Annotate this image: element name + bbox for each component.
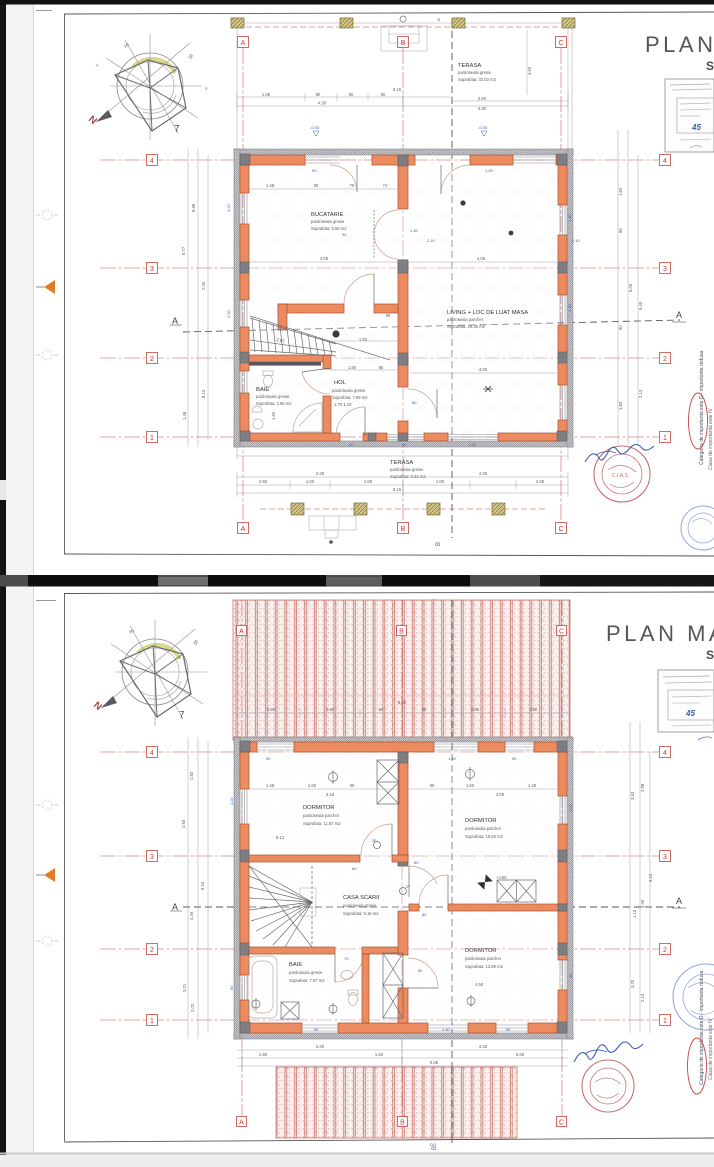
svg-text:80: 80 — [418, 968, 423, 973]
svg-text:1.20: 1.20 — [226, 309, 231, 318]
svg-text:1: 1 — [663, 435, 667, 442]
svg-text:1.82: 1.82 — [271, 411, 276, 420]
svg-text:80: 80 — [422, 912, 427, 917]
svg-text:4.30: 4.30 — [479, 1044, 488, 1049]
svg-text:90: 90 — [379, 707, 384, 712]
svg-text:8.05: 8.05 — [628, 283, 633, 292]
svg-text:Suprafata: 9.16 m2: Suprafata: 9.16 m2 — [343, 911, 379, 916]
svg-text:60: 60 — [349, 442, 354, 447]
svg-text:B: B — [401, 40, 406, 47]
svg-text:+4.50: +4.50 — [496, 875, 507, 880]
svg-text:2.45: 2.45 — [201, 281, 206, 290]
svg-text:1.40: 1.40 — [410, 228, 419, 233]
svg-text:LIVING + LOC DE LUAT MASA: LIVING + LOC DE LUAT MASA — [447, 310, 528, 316]
svg-text:1.80: 1.80 — [348, 365, 357, 370]
svg-text:C.I.A.S.: C.I.A.S. — [612, 473, 629, 479]
svg-text:Clasa de importanta este IV: Clasa de importanta este IV — [708, 408, 714, 470]
svg-text:pardoseala gresie: pardoseala gresie — [256, 394, 290, 399]
svg-text:TERASA: TERASA — [458, 63, 481, 69]
svg-text:2.13: 2.13 — [640, 993, 645, 1002]
svg-text:45: 45 — [685, 709, 695, 718]
svg-text:B: B — [436, 542, 442, 546]
svg-text:9.15: 9.15 — [393, 487, 402, 492]
svg-text:1: 1 — [663, 1018, 667, 1025]
svg-text:C: C — [559, 1120, 564, 1127]
svg-text:HOL: HOL — [334, 380, 347, 386]
svg-text:-0.05: -0.05 — [478, 125, 488, 130]
svg-text:Suprafata: 9.22 m2: Suprafata: 9.22 m2 — [390, 474, 426, 479]
svg-text:2.82: 2.82 — [189, 771, 194, 780]
svg-text:70: 70 — [350, 183, 355, 188]
svg-text:9.85: 9.85 — [430, 1060, 439, 1065]
svg-text:2.98: 2.98 — [640, 783, 645, 792]
svg-text:90: 90 — [386, 313, 391, 318]
svg-text:90: 90 — [618, 228, 623, 233]
svg-text:3: 3 — [663, 854, 667, 861]
svg-text:4.05: 4.05 — [477, 256, 486, 261]
svg-text:BUCATARIE: BUCATARIE — [311, 212, 343, 218]
svg-text:80: 80 — [402, 442, 407, 447]
svg-text:1.48: 1.48 — [266, 183, 275, 188]
svg-text:pardoseala gresie: pardoseala gresie — [311, 219, 345, 224]
svg-text:1.40: 1.40 — [448, 756, 457, 761]
svg-text:Suprafata: 13.99 m2: Suprafata: 13.99 m2 — [465, 964, 504, 969]
svg-text:3: 3 — [150, 854, 154, 861]
svg-text:Suprafata: 32.03 m2: Suprafata: 32.03 m2 — [458, 77, 497, 82]
svg-text:pardoseala parchet: pardoseala parchet — [447, 317, 484, 322]
svg-text:4.60: 4.60 — [527, 66, 532, 75]
svg-text:-0.05: -0.05 — [310, 125, 320, 130]
svg-text:4.30: 4.30 — [479, 471, 488, 476]
svg-text:2: 2 — [663, 356, 667, 363]
svg-text:90: 90 — [316, 92, 321, 97]
svg-text:1.90: 1.90 — [326, 707, 335, 712]
svg-text:1.20: 1.20 — [568, 803, 573, 812]
svg-text:pardoseala gresie: pardoseala gresie — [289, 970, 323, 975]
svg-text:4.30: 4.30 — [316, 1044, 325, 1049]
svg-text:80: 80 — [352, 866, 357, 871]
svg-text:1.60: 1.60 — [466, 783, 475, 788]
svg-text:4.50: 4.50 — [475, 982, 484, 987]
svg-text:A: A — [172, 316, 178, 326]
svg-text:1.83: 1.83 — [618, 401, 623, 410]
svg-text:1.20: 1.20 — [226, 203, 231, 212]
svg-text:4.18: 4.18 — [326, 792, 335, 797]
svg-text:1.20: 1.20 — [468, 442, 477, 447]
svg-text:1.40: 1.40 — [442, 1027, 451, 1032]
svg-text:4.05: 4.05 — [496, 792, 505, 797]
svg-text:A: A — [241, 40, 246, 47]
svg-text:4: 4 — [663, 158, 667, 165]
svg-text:pardoseala parchet: pardoseala parchet — [465, 956, 502, 961]
svg-text:1.90: 1.90 — [259, 1052, 268, 1057]
svg-text:90: 90 — [349, 92, 354, 97]
svg-text:Suprafata: 7.87 m2: Suprafata: 7.87 m2 — [289, 978, 325, 983]
svg-text:1.83: 1.83 — [618, 187, 623, 196]
svg-text:9.15: 9.15 — [393, 87, 402, 92]
svg-text:45: 45 — [691, 123, 701, 132]
svg-text:90: 90 — [314, 1027, 319, 1032]
svg-text:BAIE: BAIE — [289, 962, 302, 968]
svg-text:4.60: 4.60 — [478, 96, 487, 101]
svg-text:pardoseala gresie: pardoseala gresie — [343, 903, 377, 908]
svg-text:8.13: 8.13 — [201, 389, 206, 398]
svg-text:9.45: 9.45 — [638, 301, 643, 310]
svg-text:4.46: 4.46 — [189, 911, 194, 920]
svg-text:1.48: 1.48 — [528, 783, 537, 788]
svg-text:A: A — [239, 629, 244, 636]
svg-text:1.90: 1.90 — [267, 707, 276, 712]
svg-text:CASA SCARII: CASA SCARII — [343, 895, 380, 901]
svg-text:1.20: 1.20 — [485, 168, 494, 173]
svg-text:3: 3 — [150, 266, 154, 273]
svg-text:1.60: 1.60 — [359, 337, 368, 342]
svg-text:Suprafata: 10.60 m2: Suprafata: 10.60 m2 — [465, 834, 504, 839]
svg-text:Clasa de importanta este IV: Clasa de importanta este IV — [708, 1018, 714, 1080]
svg-text:1.48: 1.48 — [266, 783, 275, 788]
svg-text:3.93: 3.93 — [630, 791, 635, 800]
svg-text:A: A — [239, 1120, 244, 1127]
svg-text:DO: DO — [430, 1142, 436, 1147]
svg-text:1.60: 1.60 — [308, 783, 317, 788]
svg-text:2: 2 — [150, 356, 154, 363]
svg-text:DORMITOR: DORMITOR — [303, 805, 334, 811]
svg-text:C: C — [559, 629, 564, 636]
svg-text:3.20: 3.20 — [630, 979, 635, 988]
svg-text:A: A — [241, 526, 246, 533]
svg-text:90: 90 — [430, 783, 435, 788]
svg-text:9.12: 9.12 — [276, 835, 285, 840]
svg-text:4: 4 — [663, 750, 667, 757]
svg-text:90: 90 — [381, 92, 386, 97]
svg-text:1.00: 1.00 — [306, 479, 315, 484]
svg-text:74: 74 — [383, 183, 388, 188]
svg-text:3.21: 3.21 — [182, 983, 187, 992]
svg-text:70: 70 — [344, 956, 349, 961]
svg-text:1: 1 — [150, 435, 154, 442]
svg-text:2.10: 2.10 — [572, 238, 581, 243]
svg-text:A: A — [172, 902, 178, 912]
svg-text:90: 90 — [512, 756, 517, 761]
svg-text:4.30: 4.30 — [478, 106, 487, 111]
svg-text:B: B — [399, 629, 404, 636]
svg-text:B: B — [401, 526, 406, 533]
svg-text:60: 60 — [568, 973, 573, 978]
svg-text:7: 7 — [174, 124, 180, 135]
svg-text:2: 2 — [663, 947, 667, 954]
svg-text:1.60: 1.60 — [375, 1052, 384, 1057]
svg-text:S: S — [706, 648, 714, 662]
svg-text:1.48: 1.48 — [182, 411, 187, 420]
svg-text:1: 1 — [150, 1018, 154, 1025]
svg-text:5.85: 5.85 — [516, 1052, 525, 1057]
svg-text:pardoseala gresie: pardoseala gresie — [332, 388, 366, 393]
svg-text:TERASA: TERASA — [390, 460, 413, 466]
svg-text:C: C — [558, 40, 563, 47]
svg-text:C: C — [558, 526, 563, 533]
svg-text:2.02: 2.02 — [190, 1003, 195, 1012]
svg-text:PLAN MAN: PLAN MAN — [606, 621, 714, 646]
svg-text:2.10: 2.10 — [427, 238, 436, 243]
svg-text:Suprafata: 3.68 m2: Suprafata: 3.68 m2 — [256, 401, 292, 406]
svg-text:1.85: 1.85 — [364, 479, 373, 484]
svg-text:PLAN P: PLAN P — [645, 32, 714, 57]
svg-text:B: B — [400, 1120, 405, 1127]
svg-text:pardoseala parchet: pardoseala parchet — [303, 813, 340, 818]
svg-text:4.05: 4.05 — [320, 256, 329, 261]
svg-text:1.20: 1.20 — [229, 796, 234, 805]
svg-text:4: 4 — [150, 750, 154, 757]
svg-text:90: 90 — [350, 783, 355, 788]
svg-text:1.13: 1.13 — [632, 909, 637, 918]
svg-text:DORMITOR: DORMITOR — [465, 818, 496, 824]
svg-text:80: 80 — [414, 860, 419, 865]
svg-text:8.05: 8.05 — [398, 700, 407, 705]
svg-text:2.65: 2.65 — [259, 479, 268, 484]
svg-text:90: 90 — [506, 1027, 511, 1032]
svg-text:Suprafata: 9.50 m2: Suprafata: 9.50 m2 — [311, 226, 347, 231]
svg-text:3: 3 — [663, 266, 667, 273]
svg-text:4.05: 4.05 — [479, 367, 488, 372]
svg-text:Categoria de importanta este D: Categoria de importanta este D - importa… — [699, 351, 705, 465]
svg-text:90: 90 — [314, 183, 319, 188]
svg-text:1.00: 1.00 — [436, 479, 445, 484]
svg-text:4.30: 4.30 — [316, 471, 325, 476]
svg-text:60: 60 — [229, 985, 234, 990]
svg-text:Categoria de importanta este D: Categoria de importanta este D - importa… — [699, 971, 705, 1085]
svg-text:2.13: 2.13 — [638, 389, 643, 398]
svg-text:80: 80 — [412, 400, 417, 405]
svg-text:2.93: 2.93 — [181, 819, 186, 828]
svg-text:Suprafata: 7.69 m2: Suprafata: 7.69 m2 — [332, 395, 368, 400]
svg-text:Suprafata: 11.87 m2: Suprafata: 11.87 m2 — [303, 821, 341, 826]
svg-text:4: 4 — [150, 158, 154, 165]
svg-text:2F: 2F — [406, 884, 411, 889]
svg-text:4.30: 4.30 — [318, 101, 327, 106]
svg-text:pardoseala gresie: pardoseala gresie — [458, 70, 492, 75]
svg-text:S: S — [706, 59, 714, 73]
svg-text:6.77: 6.77 — [181, 246, 186, 255]
svg-text:A: A — [676, 896, 682, 906]
svg-text:90: 90 — [342, 232, 347, 237]
svg-text:1.40: 1.40 — [567, 213, 572, 222]
svg-text:85: 85 — [379, 365, 384, 370]
svg-text:90: 90 — [312, 168, 317, 173]
svg-text:1.40: 1.40 — [567, 303, 572, 312]
svg-text:B: B — [436, 18, 441, 21]
svg-text:8.98: 8.98 — [191, 203, 196, 212]
svg-text:1.85: 1.85 — [262, 92, 271, 97]
svg-text:DORMITOR: DORMITOR — [465, 948, 496, 954]
svg-text:2.65: 2.65 — [536, 479, 545, 484]
svg-text:1.90: 1.90 — [529, 707, 538, 712]
svg-text:BAIE: BAIE — [256, 387, 269, 393]
svg-text:8.15: 8.15 — [200, 881, 205, 890]
svg-text:3.45: 3.45 — [640, 899, 645, 908]
svg-text:2: 2 — [150, 947, 154, 954]
svg-text:pardoseala parchet: pardoseala parchet — [465, 826, 502, 831]
svg-text:7: 7 — [179, 710, 185, 721]
svg-text:Suprafata: 29.36 m2: Suprafata: 29.36 m2 — [447, 324, 486, 329]
svg-text:A: A — [676, 310, 682, 320]
svg-text:90: 90 — [266, 756, 271, 761]
svg-text:90: 90 — [422, 707, 427, 712]
svg-text:90: 90 — [618, 325, 623, 330]
svg-text:1.90: 1.90 — [471, 707, 480, 712]
svg-text:pardoseala gresie: pardoseala gresie — [390, 467, 424, 472]
svg-text:1.70 1.10: 1.70 1.10 — [334, 402, 352, 407]
svg-text:9.15: 9.15 — [648, 873, 653, 882]
